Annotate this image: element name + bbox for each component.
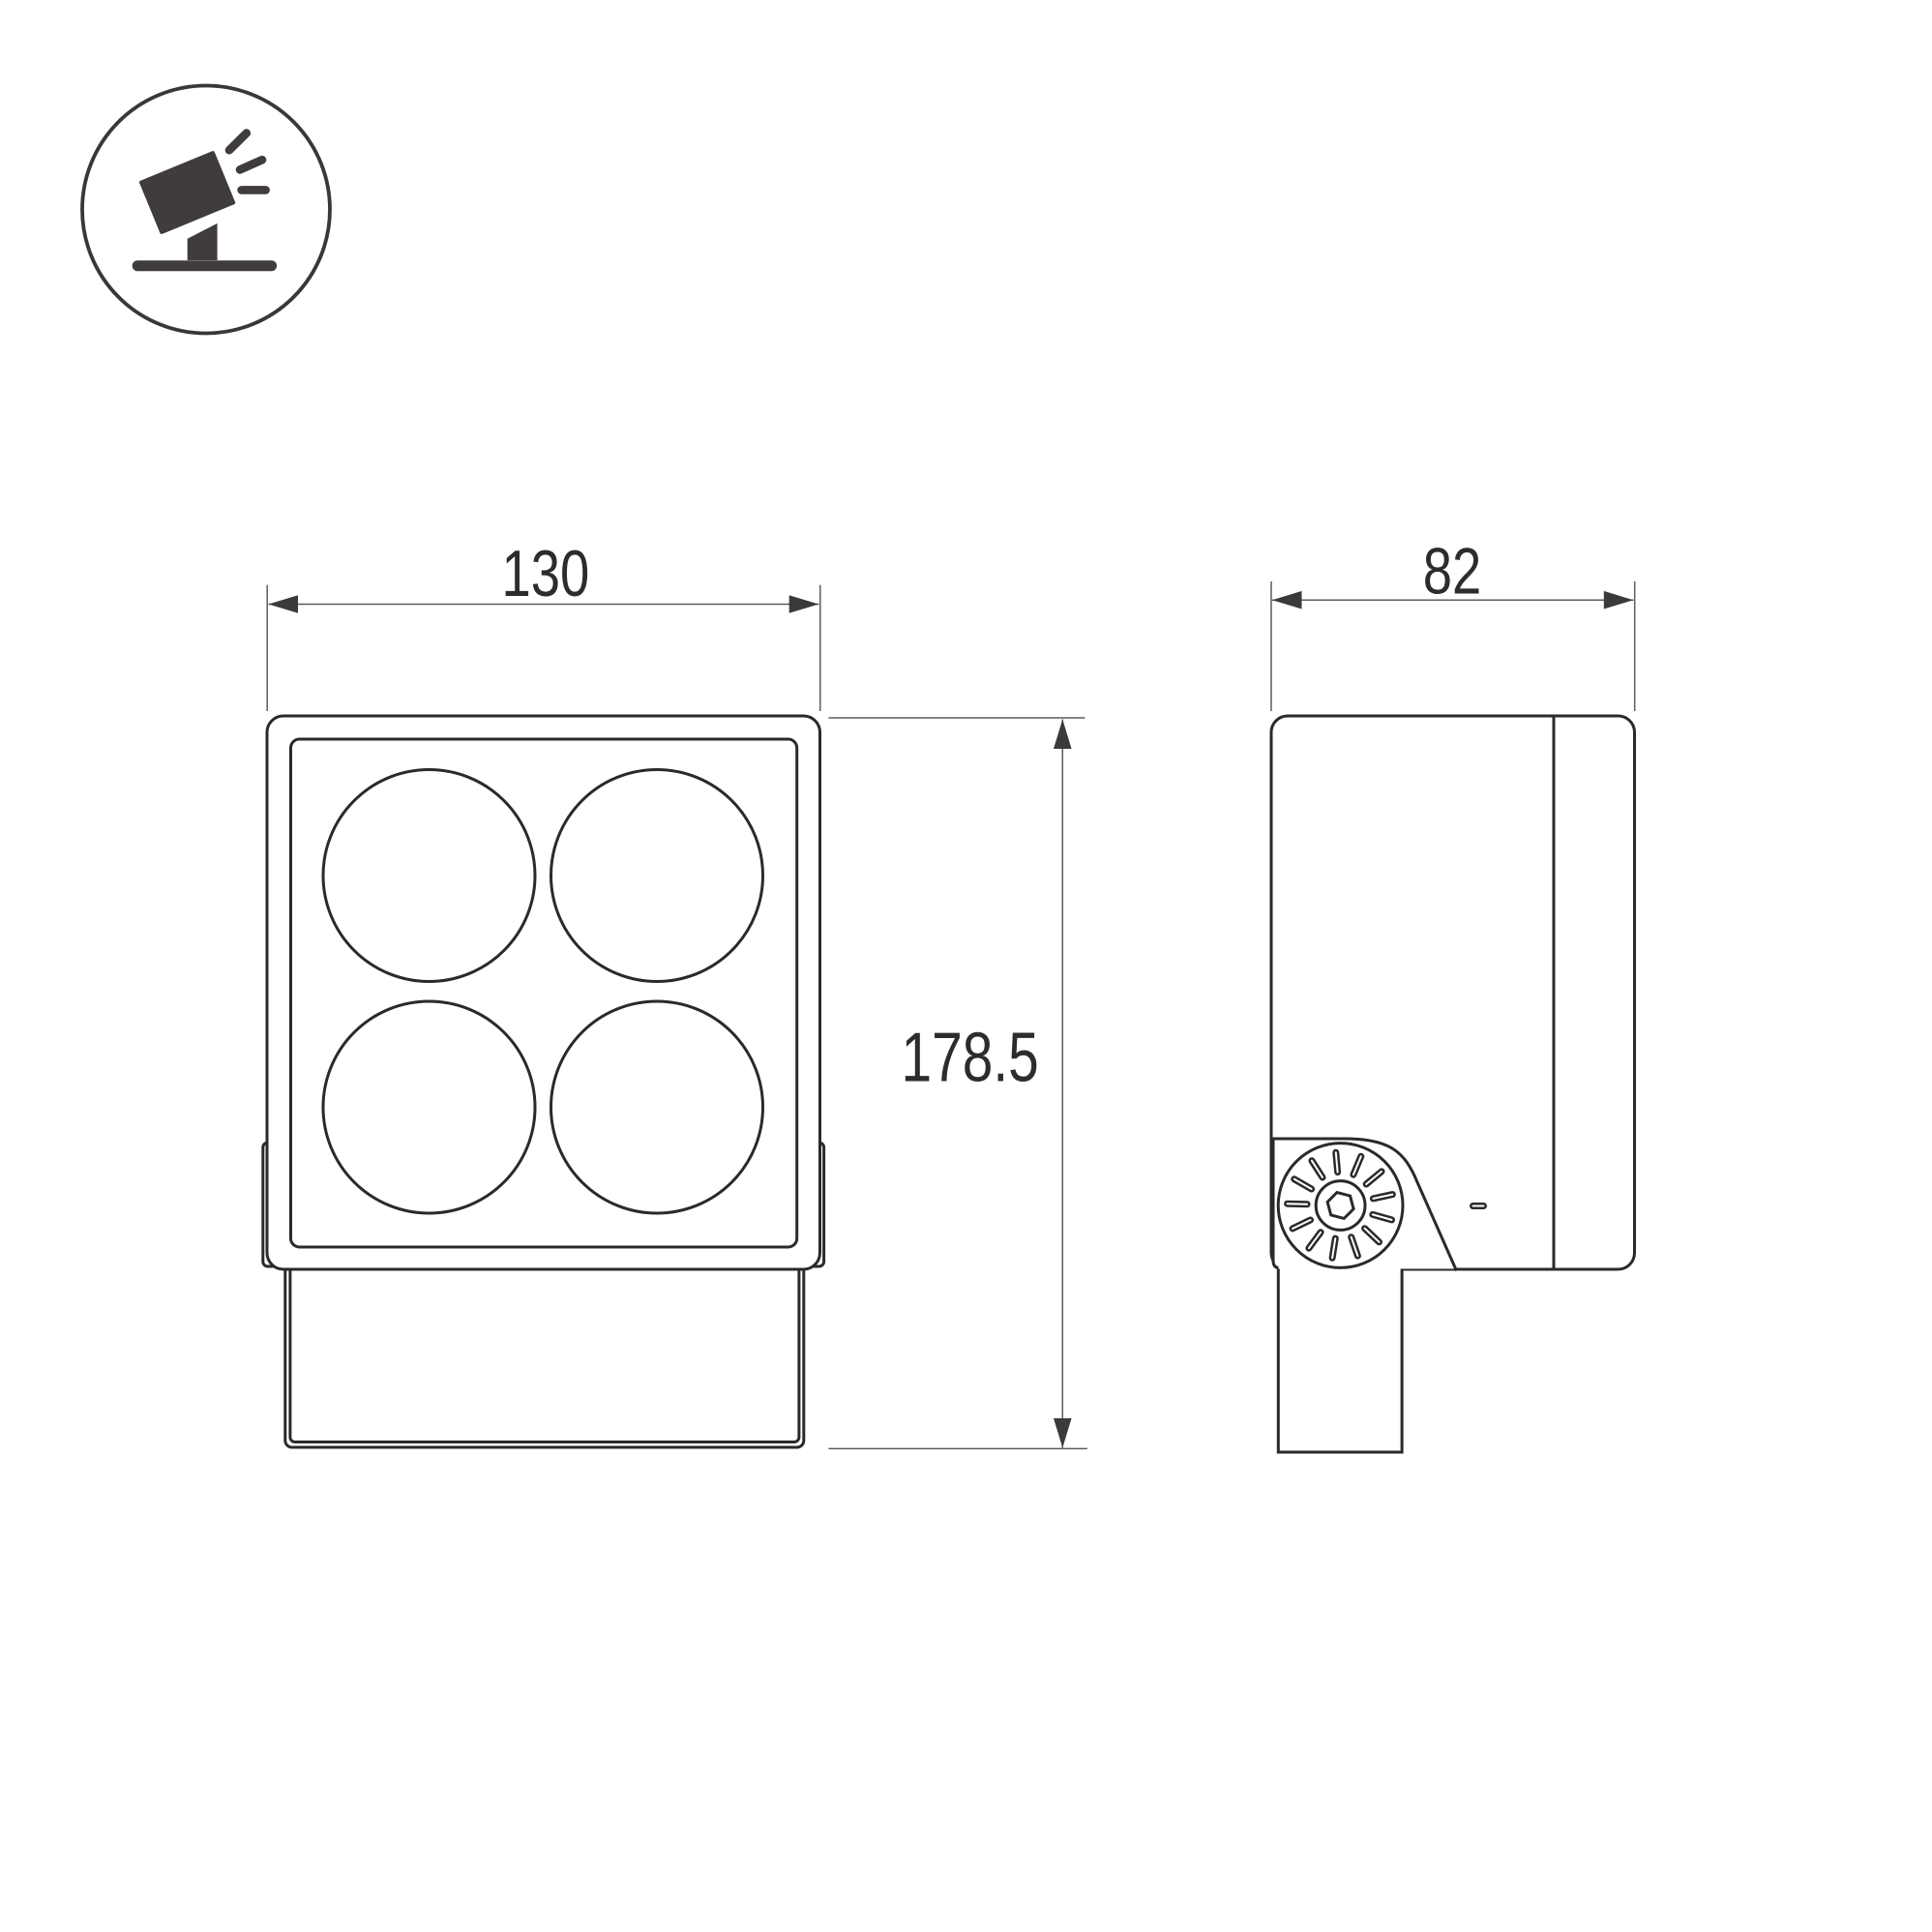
svg-text:130: 130 xyxy=(502,537,590,610)
svg-text:82: 82 xyxy=(1423,535,1482,609)
svg-text:178.5: 178.5 xyxy=(901,1018,1038,1096)
